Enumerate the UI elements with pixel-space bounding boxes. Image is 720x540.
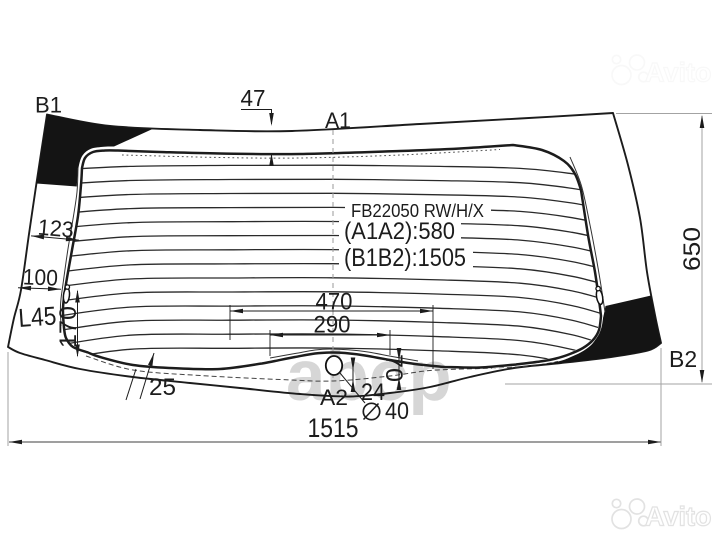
svg-text:A2: A2 <box>320 385 348 410</box>
svg-text:100: 100 <box>22 264 58 290</box>
svg-text:650: 650 <box>679 227 706 271</box>
svg-text:70: 70 <box>380 354 407 382</box>
svg-text:L45: L45 <box>17 300 57 333</box>
svg-text:123: 123 <box>37 215 75 243</box>
svg-text:B2: B2 <box>669 346 697 372</box>
svg-text:40: 40 <box>385 398 409 425</box>
svg-text:(B1B2):1505: (B1B2):1505 <box>344 244 466 272</box>
svg-text:1515: 1515 <box>308 413 359 443</box>
svg-text:B1: B1 <box>35 93 62 118</box>
svg-text:Avito: Avito <box>645 58 712 88</box>
svg-text:25: 25 <box>149 374 176 401</box>
svg-text:(A1A2):580: (A1A2):580 <box>344 218 455 245</box>
svg-text:170: 170 <box>55 306 82 348</box>
svg-text:290: 290 <box>314 312 351 339</box>
svg-text:Avito: Avito <box>645 502 712 532</box>
svg-text:47: 47 <box>241 85 266 111</box>
svg-text:A1: A1 <box>325 108 351 133</box>
